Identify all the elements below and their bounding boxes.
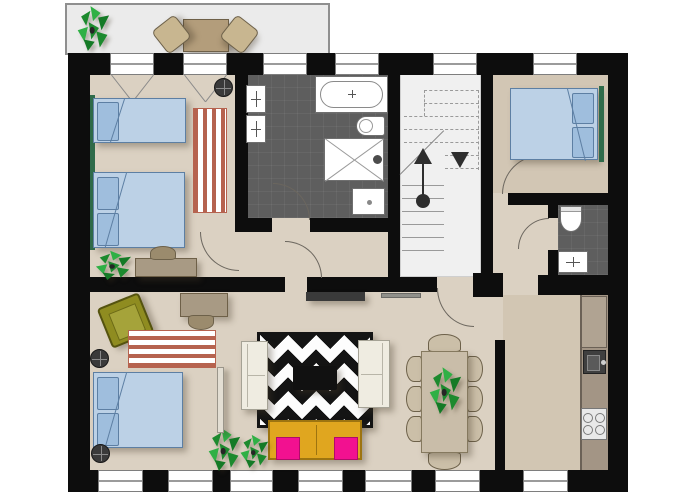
dining-chair-end-top	[428, 334, 461, 352]
wc-toilet	[560, 206, 582, 232]
cabinet-handle	[249, 118, 263, 140]
wall-wc-left-lower	[548, 250, 558, 275]
pillow	[97, 213, 119, 246]
console-light	[381, 293, 421, 298]
balcony-plant-icon	[76, 5, 110, 51]
stove-burner	[595, 413, 605, 423]
wall-bath-bottom-left	[235, 218, 272, 232]
double-bed-top-right	[510, 88, 598, 160]
pink-cushion	[276, 437, 300, 460]
window-bottom-6	[435, 470, 480, 492]
dining-chair-left	[406, 416, 422, 442]
stair-dashed-edge	[478, 90, 479, 170]
wall-bath-bottom-right	[310, 218, 400, 232]
basin-drain	[367, 200, 372, 205]
wc-basin	[558, 251, 588, 273]
stair-tread-dashed	[445, 168, 479, 169]
stair-tread-dashed	[404, 142, 479, 143]
stair-tread	[402, 237, 444, 238]
window-bottom-3	[230, 470, 273, 492]
shower-head	[373, 155, 382, 164]
pillow	[97, 413, 119, 446]
window-top-4	[335, 53, 379, 75]
stove-burner	[583, 413, 593, 423]
dining-chair-end-bottom	[428, 452, 461, 470]
window-bottom-7	[523, 470, 568, 492]
window-top-1	[110, 53, 154, 75]
round-side-table	[91, 444, 110, 463]
dining-chair-right	[467, 356, 483, 382]
cushion-line	[247, 344, 248, 407]
yellow-sofa	[268, 420, 362, 460]
striped-rug-vertical	[193, 108, 227, 213]
round-side-table	[214, 78, 233, 97]
double-bed-bottom-left	[93, 372, 183, 448]
window-bottom-5	[365, 470, 412, 492]
dining-chair-left	[406, 386, 422, 412]
window-top-3	[263, 53, 307, 75]
window-bottom-4	[298, 470, 343, 492]
wc-toilet-tank	[561, 207, 581, 212]
stair-tread	[402, 211, 444, 212]
shower	[324, 138, 384, 181]
stair-dashed-edge	[424, 90, 425, 116]
window-top-6	[533, 53, 577, 75]
stair-tread-dashed	[404, 129, 479, 130]
wall-stair-left	[388, 53, 400, 277]
stair-tread-dashed	[404, 116, 479, 117]
desk-chair-bedroom3	[188, 315, 214, 330]
cabinet-handle	[249, 88, 263, 110]
kitchen-sink	[583, 350, 606, 374]
cushion-line	[382, 343, 383, 405]
stair-arrow-stem	[422, 162, 424, 198]
dining-chair-left	[406, 356, 422, 382]
toilet-seat	[359, 119, 373, 133]
round-side-table	[90, 349, 109, 368]
stove-burner	[583, 425, 593, 435]
desk-bedroom1	[135, 258, 197, 277]
stair-tread-dashed	[424, 103, 479, 104]
dining-chair-right	[467, 386, 483, 412]
room-partition	[217, 367, 224, 433]
stove-burner	[595, 425, 605, 435]
striped-rug-horizontal	[128, 330, 216, 368]
plant-bedroom1	[94, 250, 132, 280]
sink-basin	[587, 355, 600, 371]
plant-living-2	[239, 434, 269, 468]
dining-chair-right	[467, 416, 483, 442]
desk-bedroom3	[180, 293, 228, 317]
bath-cabinet-2	[246, 115, 266, 143]
cushion-line	[316, 425, 317, 455]
wall-left	[68, 53, 90, 492]
wall-corridor-c	[473, 273, 503, 297]
stair-tread-dashed	[424, 90, 479, 91]
stair-tread	[402, 250, 444, 251]
window-top-5	[433, 53, 477, 75]
wall-corridor-b	[307, 277, 437, 292]
plant-living-1	[207, 427, 241, 471]
cushion-line	[361, 374, 383, 375]
sink-faucet	[601, 360, 606, 365]
cushion-line	[247, 375, 265, 376]
window-bottom-1	[98, 470, 143, 492]
kitchen-stove	[581, 408, 607, 440]
desk-chair-bedroom1	[150, 246, 176, 260]
kitchen-cabinet-top	[581, 296, 607, 348]
double-bed-top-left	[93, 172, 185, 248]
plant-dining-table	[428, 366, 462, 414]
bathtub-drain	[346, 88, 358, 100]
wall-dining-kitchen	[495, 340, 505, 470]
wall-wc-left-upper	[548, 205, 558, 218]
window-bottom-2	[168, 470, 213, 492]
staircase-floor	[400, 65, 481, 277]
wall-stair-right	[481, 53, 493, 277]
bathroom-basin	[352, 188, 385, 215]
bathtub	[315, 76, 388, 113]
coffee-table	[293, 366, 337, 390]
stair-down-arrow-icon	[451, 152, 469, 168]
console-dark	[306, 292, 365, 301]
stair-start-dot	[416, 194, 430, 208]
single-bed	[93, 98, 186, 143]
white-sofa-left	[241, 341, 268, 410]
basin-tap	[563, 255, 583, 269]
stair-tread	[402, 224, 444, 225]
pink-cushion	[334, 437, 358, 460]
wall-wc-bottom	[538, 275, 608, 295]
white-sofa-right	[358, 340, 390, 408]
bathroom-toilet	[356, 116, 385, 136]
floor-plan	[0, 0, 700, 500]
bath-cabinet-1	[246, 85, 266, 113]
window-top-2	[183, 53, 227, 75]
wall-right	[608, 53, 628, 492]
wall-bedroom2-bottom	[508, 193, 608, 205]
curtain-strip	[599, 86, 604, 162]
